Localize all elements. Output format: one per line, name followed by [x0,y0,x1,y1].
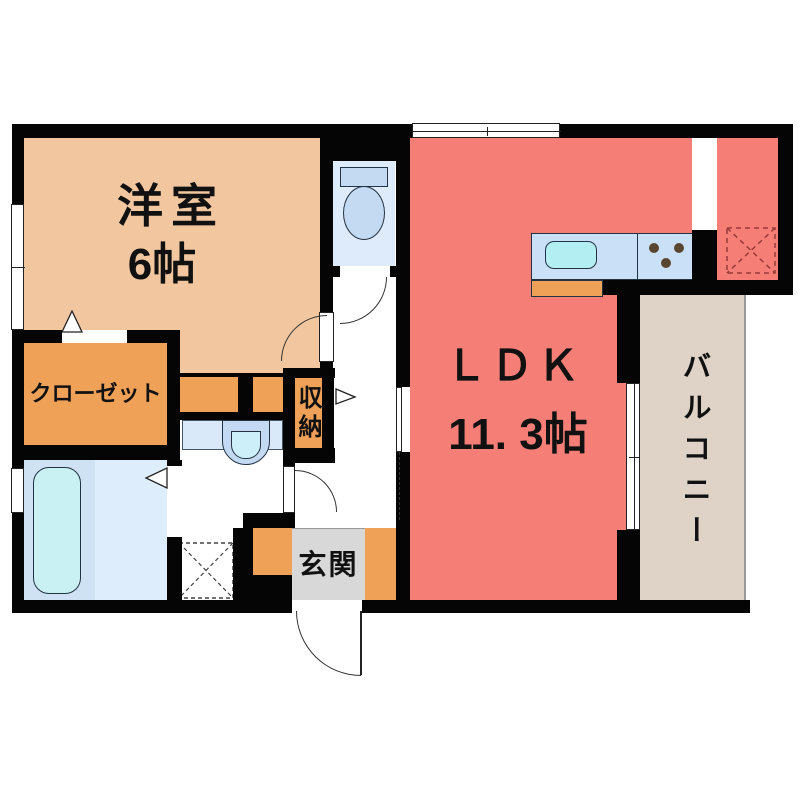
wall-entrance-north [243,513,293,528]
wall-ldk-balcony-lower [617,530,640,600]
window-westernroom-left [11,204,24,330]
stove-burner-1 [649,243,659,253]
ldk-sliding-door-track [399,452,400,520]
balcony-label: バルコニー [676,330,712,576]
window-top-ldk [412,123,560,138]
washbasin-bowl-inner [231,431,261,459]
stove-burner-2 [674,243,684,253]
toilet-door-opening [340,266,390,277]
wall-cells-top [180,373,283,377]
closet-label: クローゼット [24,381,167,407]
bath-door-opening [167,466,182,537]
entrance-label: 玄関 [292,548,365,582]
washing-machine-space-icon [177,541,235,601]
wall-cells-divider [238,377,253,412]
ldk-size-label: 11. 3帖 [404,410,632,460]
wall-bottom [12,600,750,613]
wall-westernroom-right-a [320,161,333,313]
wall-top [12,124,793,138]
toilet-bowl [343,186,385,240]
kitchen-counter-divider [637,233,638,280]
wall-under-alcove [603,280,793,295]
washroom-door-leaf [283,466,295,513]
washroom-door-arc [295,470,337,512]
wall-right-upper [778,124,793,295]
toilet-door-arc [340,277,387,324]
ldk-label: ＬＤＫ [404,342,624,390]
western-room-label: 洋室 [71,181,271,231]
storage-label: 収納 [293,379,322,449]
storage-door-marker-icon [334,386,358,408]
toilet-tank [340,167,388,187]
wall-below-shoe-cabinet [253,575,292,602]
refrigerator-space-icon [725,226,777,276]
bathtub [33,467,81,594]
wall-closet-right [167,330,180,460]
wall-cells-bottom [180,412,283,420]
entrance-door-arc [296,611,361,676]
stove-burner-3 [661,258,671,268]
western-room-storage-cell-right [253,377,283,412]
balcony-railing-line [744,295,746,600]
ldk-sliding-door-panel [396,387,402,452]
shoe-cabinet-left [253,528,292,575]
western-room-storage-cell-left [180,377,238,412]
wall-washer-entrance-divider [233,528,253,602]
wall-kitchen-stub [692,230,717,280]
closet-door-marker-icon [59,308,87,336]
kitchen-sink [545,241,597,269]
shoe-cabinet-right [365,528,398,602]
bath-door-marker-icon [143,465,169,491]
floor-plan: 洋室 6帖 クローゼット 収納 玄関 ＬＤＫ 11. 3帖 バルコニー [0,0,800,800]
window-bath-left [11,468,24,513]
wall-storage-bottom [293,448,335,463]
wall-left [12,124,24,613]
wall-closet-bottom [12,445,180,460]
kitchen-cabinet [531,280,603,297]
western-room-size-label: 6帖 [62,240,262,290]
